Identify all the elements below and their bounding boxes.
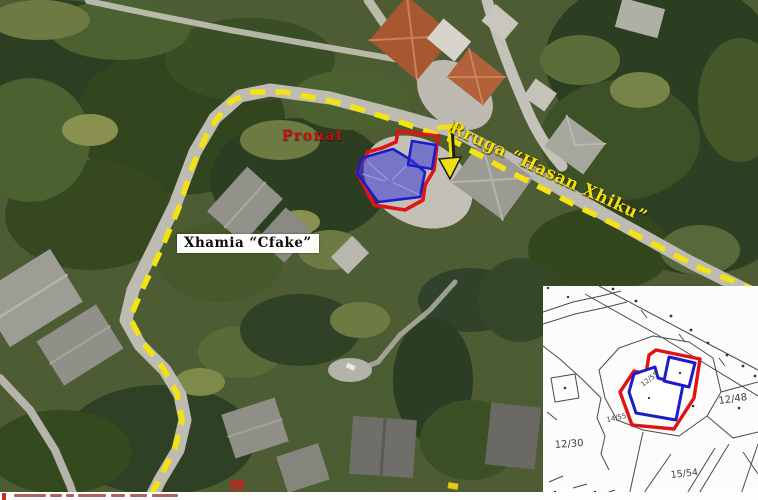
parcel-label: 12/30 xyxy=(554,438,584,451)
caption-red-bar xyxy=(2,493,6,500)
cadastral-inset-map: 12/48 12/30 15/54 12/55 14/55 xyxy=(543,286,758,500)
property-building-annex xyxy=(408,141,436,169)
mosque-name-label: Xhamia “Cfake” xyxy=(177,234,319,253)
property-highlight xyxy=(357,131,438,210)
parcel-label: 15/54 xyxy=(670,467,698,481)
parcel-label: 12/48 xyxy=(718,392,748,407)
caption-strip xyxy=(0,492,758,500)
annotated-aerial-map: Pronat Rruga “Hasan Xhiku” Xhamia “Cfake… xyxy=(0,0,758,500)
inset-property-highlight xyxy=(620,350,700,429)
property-label: Pronat xyxy=(282,128,344,144)
